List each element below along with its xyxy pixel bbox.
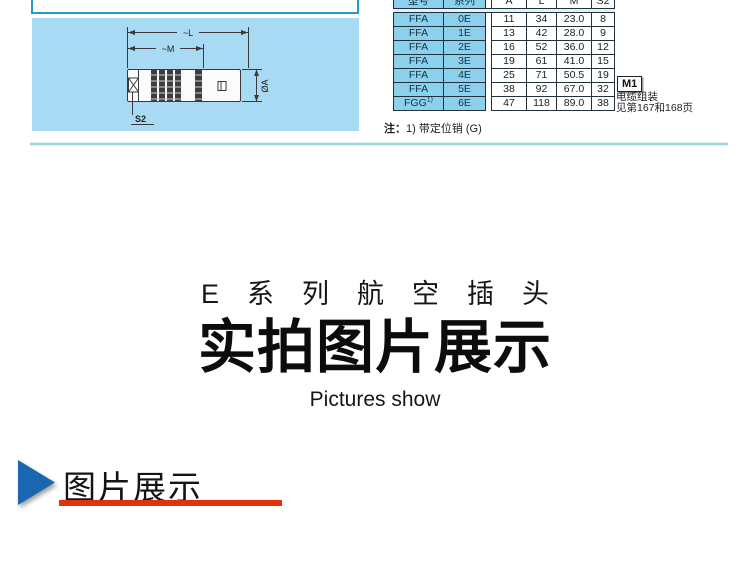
table-cell: 19 bbox=[592, 69, 615, 83]
gallery-header-section: 图片展示 bbox=[0, 450, 750, 530]
table-cell: 32 bbox=[592, 83, 615, 97]
table-cell: 1E bbox=[444, 27, 486, 41]
table-cell: FFA bbox=[394, 13, 444, 27]
table-cell: 41.0 bbox=[557, 55, 592, 69]
table-header-row: 型号 系列 A L M S2 bbox=[394, 0, 615, 9]
table-cell: 9 bbox=[592, 27, 615, 41]
arrow-triangle-icon bbox=[18, 459, 60, 509]
table-cell: 71 bbox=[527, 69, 557, 83]
table-cell: 92 bbox=[527, 83, 557, 97]
table-cell: 38 bbox=[492, 83, 527, 97]
table-cell: 28.0 bbox=[557, 27, 592, 41]
section-divider-line bbox=[30, 143, 728, 145]
table-cell: 13 bbox=[492, 27, 527, 41]
dim-label-S2: S2 bbox=[135, 114, 146, 124]
product-detail-page: ~L ~M bbox=[0, 0, 750, 576]
table-cell: 50.5 bbox=[557, 69, 592, 83]
table-cell: 52 bbox=[527, 41, 557, 55]
table-cell: FFA bbox=[394, 83, 444, 97]
table-cell: 36.0 bbox=[557, 41, 592, 55]
col-header-l: L bbox=[527, 0, 557, 9]
table-cell: 16 bbox=[492, 41, 527, 55]
table-cell: 61 bbox=[527, 55, 557, 69]
table-cell: 47 bbox=[492, 97, 527, 111]
table-cell: 11 bbox=[492, 13, 527, 27]
table-cell: 23.0 bbox=[557, 13, 592, 27]
red-underline bbox=[59, 500, 282, 506]
table-cell: 12 bbox=[592, 41, 615, 55]
connector-technical-drawing: ~L ~M bbox=[32, 18, 359, 131]
series-subtitle: E系列航空插头 bbox=[0, 272, 750, 311]
table-row: FFA3E196141.015 bbox=[394, 55, 615, 69]
title-section: E系列航空插头 实拍图片展示 Pictures show bbox=[0, 265, 750, 412]
col-header-a: A bbox=[492, 0, 527, 9]
col-header-model: 型号 bbox=[394, 0, 444, 9]
dim-label-L: ~L bbox=[183, 28, 193, 38]
cropped-top-box bbox=[31, 0, 359, 14]
table-cell: FFA bbox=[394, 41, 444, 55]
table-cell: 67.0 bbox=[557, 83, 592, 97]
table-cell: 4E bbox=[444, 69, 486, 83]
footnote-text: 1) 带定位销 (G) bbox=[406, 123, 482, 135]
m1-badge: M1 bbox=[617, 76, 642, 92]
table-cell: 34 bbox=[527, 13, 557, 27]
english-subtitle: Pictures show bbox=[0, 388, 750, 412]
col-header-m: M bbox=[557, 0, 592, 9]
table-cell: 42 bbox=[527, 27, 557, 41]
col-header-s2: S2 bbox=[592, 0, 615, 9]
table-cell: 0E bbox=[444, 13, 486, 27]
table-row: FFA2E165236.012 bbox=[394, 41, 615, 55]
table-row: FFA5E389267.032 bbox=[394, 83, 615, 97]
connector-diagram-panel: ~L ~M bbox=[32, 18, 359, 131]
main-headline: 实拍图片展示 bbox=[0, 318, 750, 379]
table-cell: FFA bbox=[394, 69, 444, 83]
table-cell: 15 bbox=[592, 55, 615, 69]
spec-table: 型号 系列 A L M S2 FFA0E113423.08FFA1E134228… bbox=[393, 0, 615, 111]
table-cell: 8 bbox=[592, 13, 615, 27]
table-cell: 2E bbox=[444, 41, 486, 55]
footnote-prefix: 注： bbox=[384, 123, 406, 135]
table-cell: 19 bbox=[492, 55, 527, 69]
dim-label-A: ØA bbox=[260, 79, 270, 92]
spec-table-body: FFA0E113423.08FFA1E134228.09FFA2E165236.… bbox=[394, 13, 615, 111]
table-cell: 118 bbox=[527, 97, 557, 111]
table-cell: 25 bbox=[492, 69, 527, 83]
table-cell: FFA bbox=[394, 55, 444, 69]
table-row: FGG1)6E4711889.038 bbox=[394, 97, 615, 111]
table-cell: FFA bbox=[394, 27, 444, 41]
dim-label-M: ~M bbox=[162, 44, 175, 54]
table-cell: 3E bbox=[444, 55, 486, 69]
table-cell: 38 bbox=[592, 97, 615, 111]
table-row: FFA1E134228.09 bbox=[394, 27, 615, 41]
page-reference-line: 见第167和168页 bbox=[616, 103, 693, 114]
table-cell: FGG1) bbox=[394, 97, 444, 111]
spec-section: ~L ~M bbox=[0, 0, 750, 170]
table-cell: 89.0 bbox=[557, 97, 592, 111]
table-row: FFA0E113423.08 bbox=[394, 13, 615, 27]
table-row: FFA4E257150.519 bbox=[394, 69, 615, 83]
table-footnote: 注：1) 带定位销 (G) bbox=[384, 120, 482, 136]
cable-assembly-note: 电缆组装 见第167和168页 bbox=[616, 92, 693, 114]
col-header-series: 系列 bbox=[444, 0, 486, 9]
table-cell: 6E bbox=[444, 97, 486, 111]
table-cell: 5E bbox=[444, 83, 486, 97]
